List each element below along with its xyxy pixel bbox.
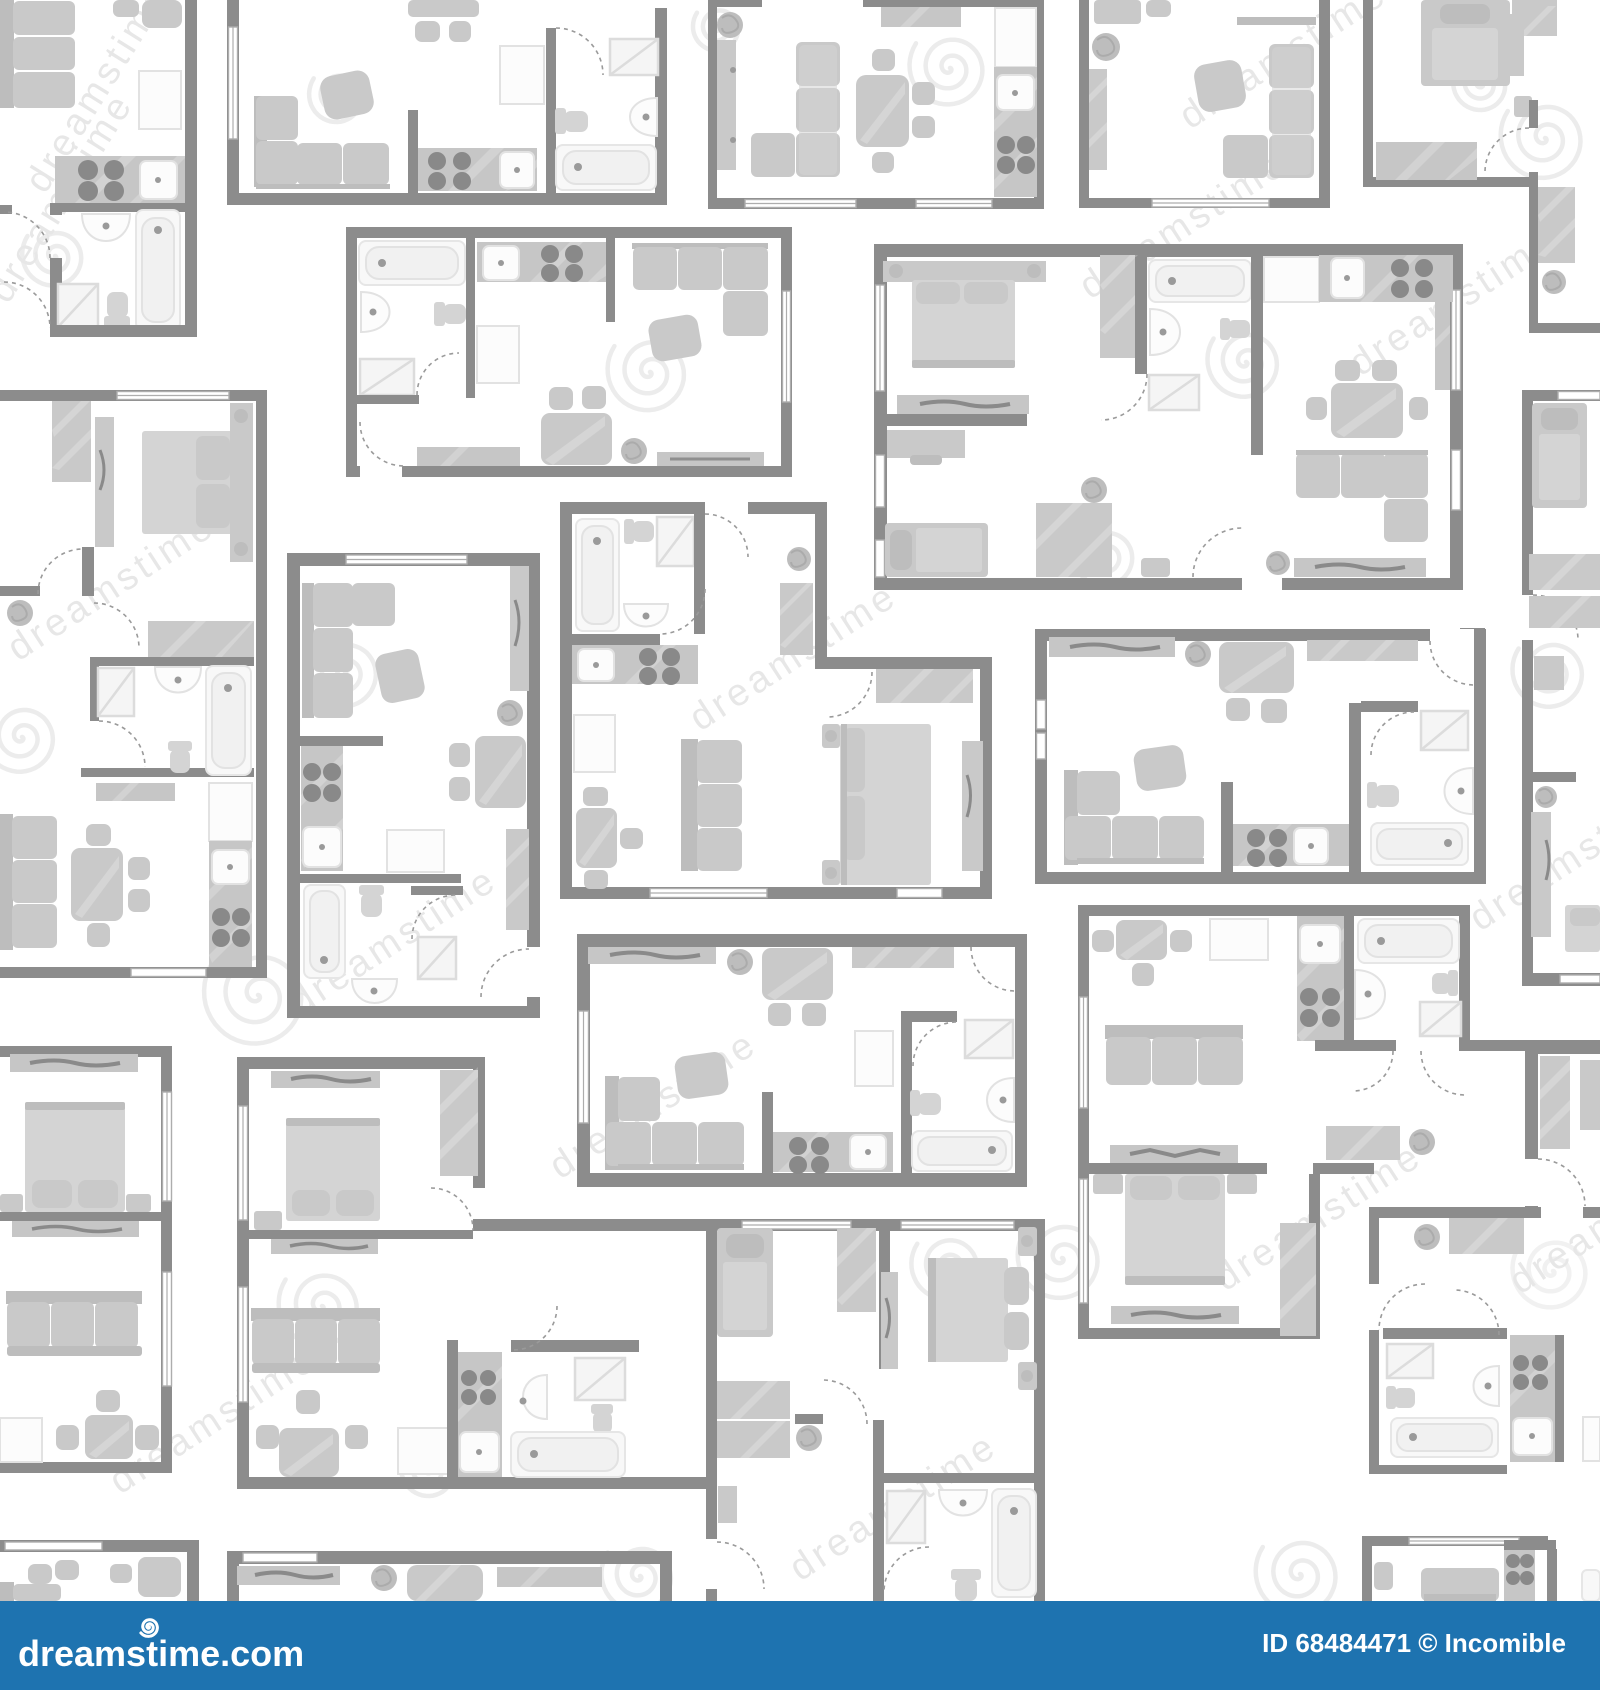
svg-text:ID 68484471 © Incomible: ID 68484471 © Incomible <box>1262 1628 1566 1658</box>
svg-text:dreamstime.com: dreamstime.com <box>18 1633 304 1674</box>
